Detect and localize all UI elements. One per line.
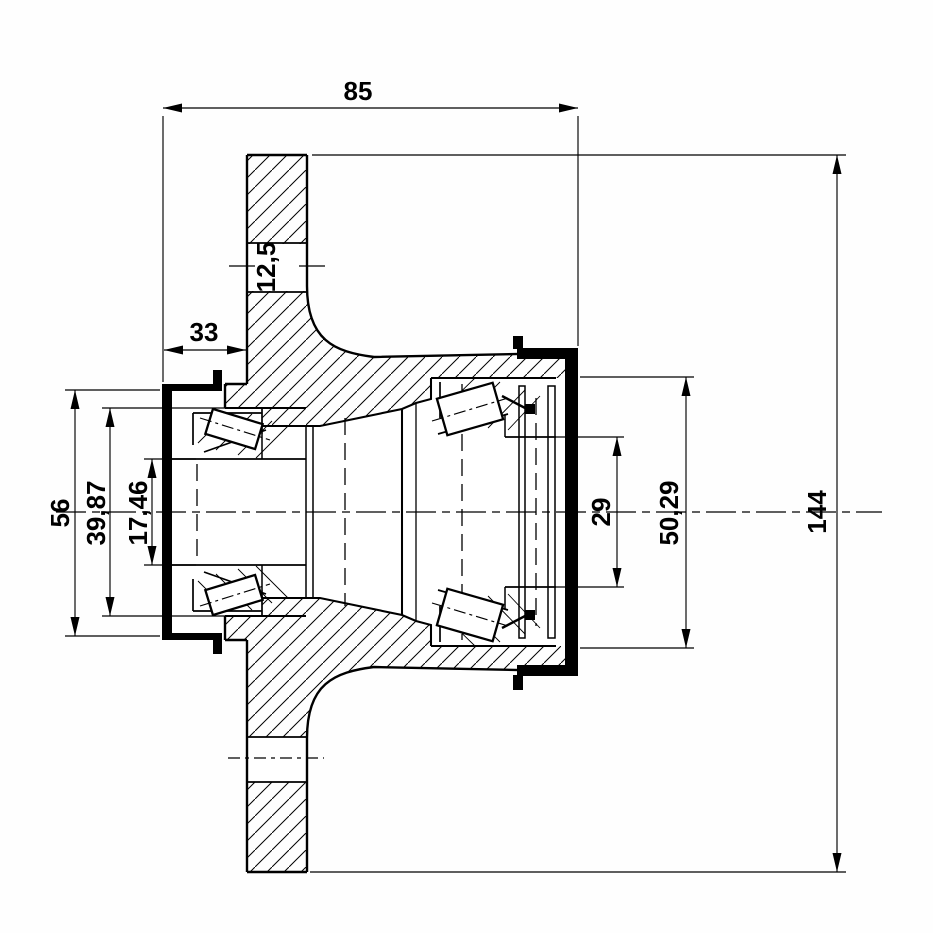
dim-17-46-arrow-top bbox=[148, 459, 157, 478]
dim-85-arrow-left bbox=[163, 104, 182, 113]
dim-29-label: 29 bbox=[586, 498, 616, 527]
flange-left-face-bottom bbox=[225, 616, 247, 872]
dim-85-label: 85 bbox=[344, 76, 373, 106]
dim-85-arrow-right bbox=[559, 104, 578, 113]
cavities bbox=[172, 244, 565, 782]
dim-56-arrow-top bbox=[71, 390, 80, 409]
dim-33-arrow-right bbox=[227, 346, 246, 355]
dim-50-29-label: 50,29 bbox=[654, 480, 684, 545]
dim-29-arrow-bottom bbox=[613, 568, 622, 587]
dim-33: 33 bbox=[164, 317, 246, 355]
dim-56-label: 56 bbox=[45, 499, 75, 528]
dim-50-29-arrow-top bbox=[682, 377, 691, 396]
dim-12-5: 12,5 bbox=[229, 242, 325, 293]
dim-33-label: 33 bbox=[190, 317, 219, 347]
dim-39-87-arrow-top bbox=[106, 408, 115, 427]
dim-144-arrow-bottom bbox=[833, 853, 842, 872]
drawing-svg: 85 12,5 33 56 39,87 bbox=[0, 0, 933, 933]
bolt-hole-bottom bbox=[248, 737, 306, 782]
flange-left-face-top bbox=[225, 155, 247, 408]
dim-56-arrow-bottom bbox=[71, 617, 80, 636]
hub-bearing-drawing: 85 12,5 33 56 39,87 bbox=[0, 0, 933, 933]
dim-39-87-arrow-bottom bbox=[106, 597, 115, 616]
dim-144-label: 144 bbox=[802, 490, 832, 534]
dim-39-87-label: 39,87 bbox=[81, 480, 111, 545]
hub-top-surface bbox=[307, 286, 566, 357]
hub-bottom-surface bbox=[307, 667, 566, 738]
dim-17-46-label: 17,46 bbox=[123, 480, 153, 545]
dim-50-29-arrow-bottom bbox=[682, 629, 691, 648]
dim-33-arrow-left bbox=[164, 346, 183, 355]
dim-12-5-label: 12,5 bbox=[251, 242, 281, 293]
dim-29-arrow-top bbox=[613, 437, 622, 456]
dim-17-46-arrow-bottom bbox=[148, 546, 157, 565]
dim-144-arrow-top bbox=[833, 155, 842, 174]
